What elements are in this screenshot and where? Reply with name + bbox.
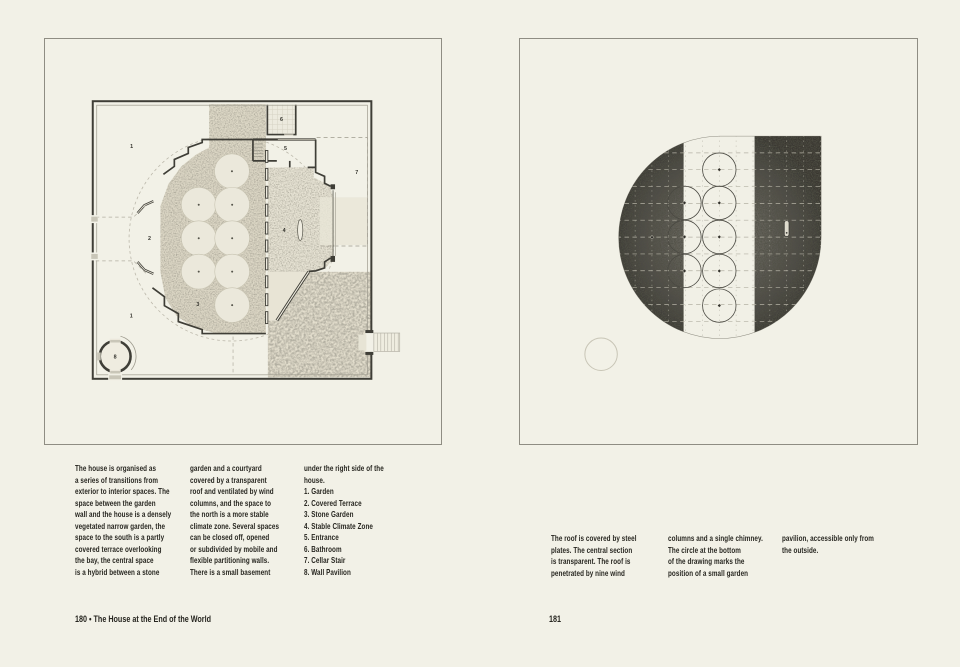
text-line: space to the south is a partly: [75, 532, 197, 544]
text-line: house.: [304, 475, 426, 487]
text-line: wall and the house is a densely: [75, 509, 197, 521]
text-line: garden and a courtyard: [190, 463, 312, 475]
text-line: There is a small basement: [190, 567, 312, 579]
text-line: 2. Covered Terrace: [304, 498, 426, 510]
table-oval: [298, 220, 303, 241]
text-line: 4. Stable Climate Zone: [304, 521, 426, 533]
left-caption-column-2: garden and a courtyardcovered by a trans…: [190, 463, 312, 578]
text-line: a series of transitions from: [75, 475, 197, 487]
exterior-stairs: [374, 333, 400, 351]
text-line: 8. Wall Pavilion: [304, 567, 426, 579]
right-caption-column-3: pavilion, accessible only fromthe outsid…: [782, 533, 904, 556]
wall-pavilion: [97, 336, 136, 374]
chimney: [784, 221, 789, 237]
roof-plan-drawing: [520, 39, 917, 444]
plan-label-4: 4: [283, 228, 286, 234]
plan-label-7: 7: [355, 170, 358, 176]
text-line: flexible partitioning walls.: [190, 555, 312, 567]
text-line: is a hybrid between a stone: [75, 567, 197, 579]
text-line: the outside.: [782, 545, 904, 557]
plan-label-8: 8: [114, 355, 117, 361]
text-line: 6. Bathroom: [304, 544, 426, 556]
text-line: covered terrace overlooking: [75, 544, 197, 556]
right-caption-column-2: columns and a single chimney.The circle …: [668, 533, 790, 579]
plan-label-2: 2: [148, 236, 151, 242]
right-figure-frame: [519, 38, 918, 445]
text-line: The house is organised as: [75, 463, 197, 475]
text-line: 5. Entrance: [304, 532, 426, 544]
text-line: space between the garden: [75, 498, 197, 510]
text-line: covered by a transparent: [190, 475, 312, 487]
text-line: is transparent. The roof is: [551, 556, 673, 568]
right-page-number: 181: [549, 614, 561, 624]
left-figure-frame: 1 2 3 4 5 6 7 8 1: [44, 38, 442, 445]
garden-pavilion-circle: [585, 338, 617, 370]
text-line: the north is a more stable: [190, 509, 312, 521]
text-line: roof and ventilated by wind: [190, 486, 312, 498]
text-line: 3. Stone Garden: [304, 509, 426, 521]
left-caption-column-3: under the right side of thehouse.1. Gard…: [304, 463, 426, 578]
garden-strip-texture: [209, 104, 266, 148]
text-line: climate zone. Several spaces: [190, 521, 312, 533]
text-line: penetrated by nine wind: [551, 568, 673, 580]
text-line: of the drawing marks the: [668, 556, 790, 568]
right-caption-column-1: The roof is covered by steelplates. The …: [551, 533, 673, 579]
text-line: position of a small garden: [668, 568, 790, 580]
text-line: can be closed off, opened: [190, 532, 312, 544]
text-line: The circle at the bottom: [668, 545, 790, 557]
plan-label-3: 3: [196, 302, 199, 308]
plan-label-6: 6: [280, 117, 283, 123]
wall-fins: [138, 201, 154, 274]
text-line: columns, and the space to: [190, 498, 312, 510]
text-line: columns and a single chimney.: [668, 533, 790, 545]
text-line: under the right side of the: [304, 463, 426, 475]
text-line: the bay, the central space: [75, 555, 197, 567]
left-caption-column-1: The house is organised asa series of tra…: [75, 463, 197, 578]
text-line: plates. The central section: [551, 545, 673, 557]
plan-label-1a: 1: [130, 144, 133, 150]
plan-label-1b: 1: [130, 314, 133, 320]
text-line: exterior to interior spaces. The: [75, 486, 197, 498]
text-line: 7. Cellar Stair: [304, 555, 426, 567]
book-spread: 1 2 3 4 5 6 7 8 1: [0, 0, 960, 667]
text-line: The roof is covered by steel: [551, 533, 673, 545]
text-line: pavilion, accessible only from: [782, 533, 904, 545]
text-line: 1. Garden: [304, 486, 426, 498]
floor-plan-drawing: 1 2 3 4 5 6 7 8 1: [45, 39, 441, 444]
text-line: vegetated narrow garden, the: [75, 521, 197, 533]
plan-label-5: 5: [284, 146, 287, 152]
left-page-footer: 180 • The House at the End of the World: [75, 614, 211, 624]
text-line: or subdivided by mobile and: [190, 544, 312, 556]
